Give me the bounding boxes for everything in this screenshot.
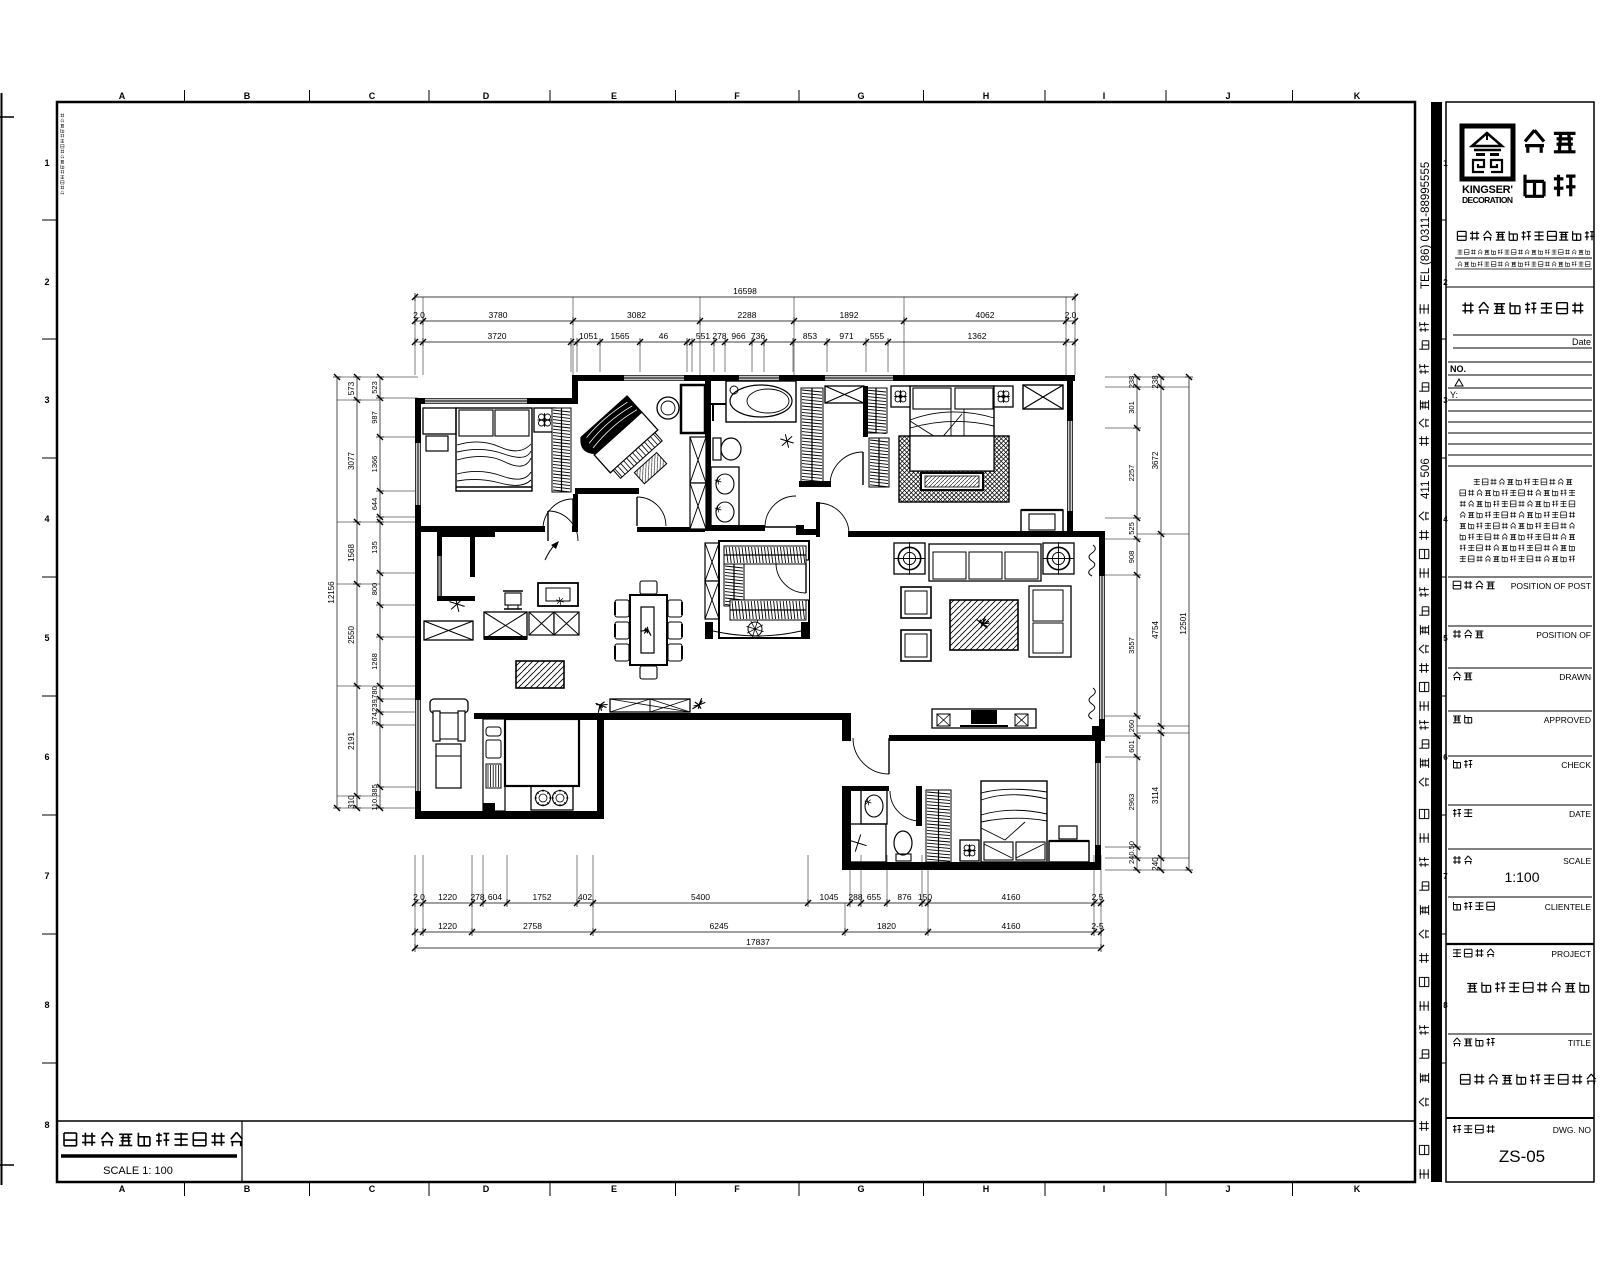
svg-text:16598: 16598 — [733, 286, 757, 296]
svg-text:8: 8 — [44, 1000, 49, 1010]
svg-text:780: 780 — [370, 686, 379, 699]
svg-text:Date: Date — [1572, 337, 1591, 347]
svg-text:1220: 1220 — [438, 921, 457, 931]
svg-text:Y:: Y: — [1450, 390, 1458, 400]
svg-text:SCALE 1: 100: SCALE 1: 100 — [103, 1165, 173, 1177]
svg-text:644: 644 — [370, 498, 379, 511]
svg-text:8: 8 — [44, 1120, 49, 1130]
svg-text:3557: 3557 — [1127, 637, 1136, 654]
svg-text:301: 301 — [1127, 401, 1136, 414]
svg-text:DWG. NO: DWG. NO — [1553, 1125, 1592, 1135]
svg-text:2191: 2191 — [347, 732, 356, 750]
svg-text:12501: 12501 — [1179, 612, 1188, 635]
svg-text:12156: 12156 — [327, 581, 336, 604]
svg-text:1220: 1220 — [438, 892, 457, 902]
svg-text:46: 46 — [659, 331, 669, 341]
svg-text:DECORATION: DECORATION — [1462, 195, 1513, 205]
svg-text:NO.: NO. — [1450, 364, 1466, 374]
svg-text:260: 260 — [1127, 720, 1136, 733]
svg-text:374: 374 — [370, 712, 379, 725]
svg-text:1820: 1820 — [877, 921, 896, 931]
svg-text:6: 6 — [44, 752, 49, 762]
svg-text:1: 1 — [44, 158, 49, 168]
svg-text:1362: 1362 — [968, 331, 987, 341]
svg-text:655: 655 — [867, 892, 881, 902]
svg-text:2.5: 2.5 — [1092, 892, 1104, 902]
svg-text:G: G — [857, 91, 864, 101]
svg-text:POSITION OF POST: POSITION OF POST — [1511, 581, 1591, 591]
svg-text:PROJECT: PROJECT — [1551, 949, 1591, 959]
svg-text:551: 551 — [696, 331, 710, 341]
svg-text:5: 5 — [44, 633, 49, 643]
svg-text:402: 402 — [578, 892, 592, 902]
svg-text:525: 525 — [1127, 522, 1136, 535]
svg-text:5400: 5400 — [691, 892, 710, 902]
svg-text:A: A — [119, 1184, 126, 1194]
svg-text:APPROVED: APPROVED — [1544, 715, 1591, 725]
svg-text:TEL (86) 0311-88995555: TEL (86) 0311-88995555 — [1420, 162, 1432, 289]
svg-text:2: 2 — [44, 277, 49, 287]
svg-text:B: B — [244, 1184, 251, 1194]
svg-text:987: 987 — [370, 411, 379, 424]
svg-text:4062: 4062 — [976, 310, 995, 320]
svg-text:3077: 3077 — [347, 452, 356, 470]
svg-text:F: F — [734, 1184, 740, 1194]
svg-text:971: 971 — [839, 331, 853, 341]
svg-text:1565: 1565 — [611, 331, 630, 341]
svg-text:876: 876 — [897, 892, 911, 902]
svg-text:1268: 1268 — [370, 653, 379, 670]
svg-text:1045: 1045 — [820, 892, 839, 902]
svg-text:4160: 4160 — [1002, 921, 1021, 931]
svg-text:H: H — [983, 91, 990, 101]
svg-text:3780: 3780 — [489, 310, 508, 320]
svg-text:K: K — [1354, 1184, 1361, 1194]
svg-text:604: 604 — [488, 892, 502, 902]
svg-text:2963: 2963 — [1127, 794, 1136, 811]
svg-text:736: 736 — [751, 331, 765, 341]
svg-text:908: 908 — [1127, 551, 1136, 564]
svg-text:555: 555 — [870, 331, 884, 341]
svg-text:B: B — [244, 91, 251, 101]
svg-text:2758: 2758 — [523, 921, 542, 931]
svg-text:D: D — [483, 1184, 490, 1194]
svg-text:SCALE: SCALE — [1563, 856, 1591, 866]
svg-text:A: A — [119, 91, 126, 101]
svg-text:3082: 3082 — [627, 310, 646, 320]
svg-text:J: J — [1225, 1184, 1230, 1194]
svg-text:1892: 1892 — [840, 310, 859, 320]
svg-text:966: 966 — [731, 331, 745, 341]
svg-text:17837: 17837 — [746, 937, 770, 947]
svg-text:CHECK: CHECK — [1561, 760, 1591, 770]
svg-text:310: 310 — [347, 795, 356, 809]
svg-text:4754: 4754 — [1151, 621, 1160, 639]
svg-text:E: E — [611, 1184, 617, 1194]
svg-text:240: 240 — [1151, 857, 1160, 871]
svg-text:DATE: DATE — [1569, 809, 1591, 819]
svg-text:4: 4 — [44, 514, 49, 524]
svg-text:150: 150 — [918, 892, 932, 902]
svg-text:E: E — [611, 91, 617, 101]
svg-text:CLIENTELE: CLIENTELE — [1545, 902, 1592, 912]
svg-text:2550: 2550 — [347, 626, 356, 644]
svg-text:2288: 2288 — [738, 310, 757, 320]
svg-text:3720: 3720 — [488, 331, 507, 341]
svg-text:601: 601 — [1127, 740, 1136, 753]
svg-text:2257: 2257 — [1127, 465, 1136, 482]
svg-text:2-5: 2-5 — [1091, 921, 1104, 931]
svg-text:523: 523 — [370, 381, 379, 394]
svg-text:1752: 1752 — [533, 892, 552, 902]
svg-text:4160: 4160 — [1002, 892, 1021, 902]
svg-text:800: 800 — [370, 583, 379, 596]
svg-text:3114: 3114 — [1151, 786, 1160, 804]
svg-text:TITLE: TITLE — [1568, 1038, 1591, 1048]
svg-text:278: 278 — [712, 331, 726, 341]
svg-text:288: 288 — [848, 892, 862, 902]
svg-text:ZS-05: ZS-05 — [1499, 1147, 1545, 1166]
svg-text:238: 238 — [1127, 376, 1136, 389]
svg-text:240.50: 240.50 — [1127, 841, 1136, 864]
svg-text:C: C — [369, 1184, 376, 1194]
svg-text:1051: 1051 — [579, 331, 598, 341]
svg-text:573: 573 — [347, 381, 356, 395]
svg-text:F: F — [734, 91, 740, 101]
svg-text:411 506: 411 506 — [1420, 458, 1432, 499]
svg-text:853: 853 — [803, 331, 817, 341]
svg-text:G: G — [857, 1184, 864, 1194]
svg-text:135: 135 — [370, 541, 379, 554]
svg-text:H: H — [983, 1184, 990, 1194]
svg-text:K: K — [1354, 91, 1361, 101]
svg-text:3: 3 — [44, 395, 49, 405]
svg-text:POSITION OF: POSITION OF — [1536, 630, 1591, 640]
svg-text:1:100: 1:100 — [1504, 869, 1539, 885]
svg-text:C: C — [369, 91, 376, 101]
svg-text:6245: 6245 — [710, 921, 729, 931]
svg-text:1366: 1366 — [370, 456, 379, 473]
svg-text:I: I — [1103, 91, 1106, 101]
svg-text:I: I — [1103, 1184, 1106, 1194]
svg-text:DRAWN: DRAWN — [1559, 672, 1591, 682]
svg-text:J: J — [1225, 91, 1230, 101]
svg-text:D: D — [483, 91, 490, 101]
svg-text:7: 7 — [44, 871, 49, 881]
svg-text:239: 239 — [370, 699, 379, 712]
svg-text:278: 278 — [470, 892, 484, 902]
svg-text:110.385: 110.385 — [370, 784, 379, 811]
svg-text:3672: 3672 — [1151, 451, 1160, 469]
svg-text:1568: 1568 — [347, 544, 356, 562]
